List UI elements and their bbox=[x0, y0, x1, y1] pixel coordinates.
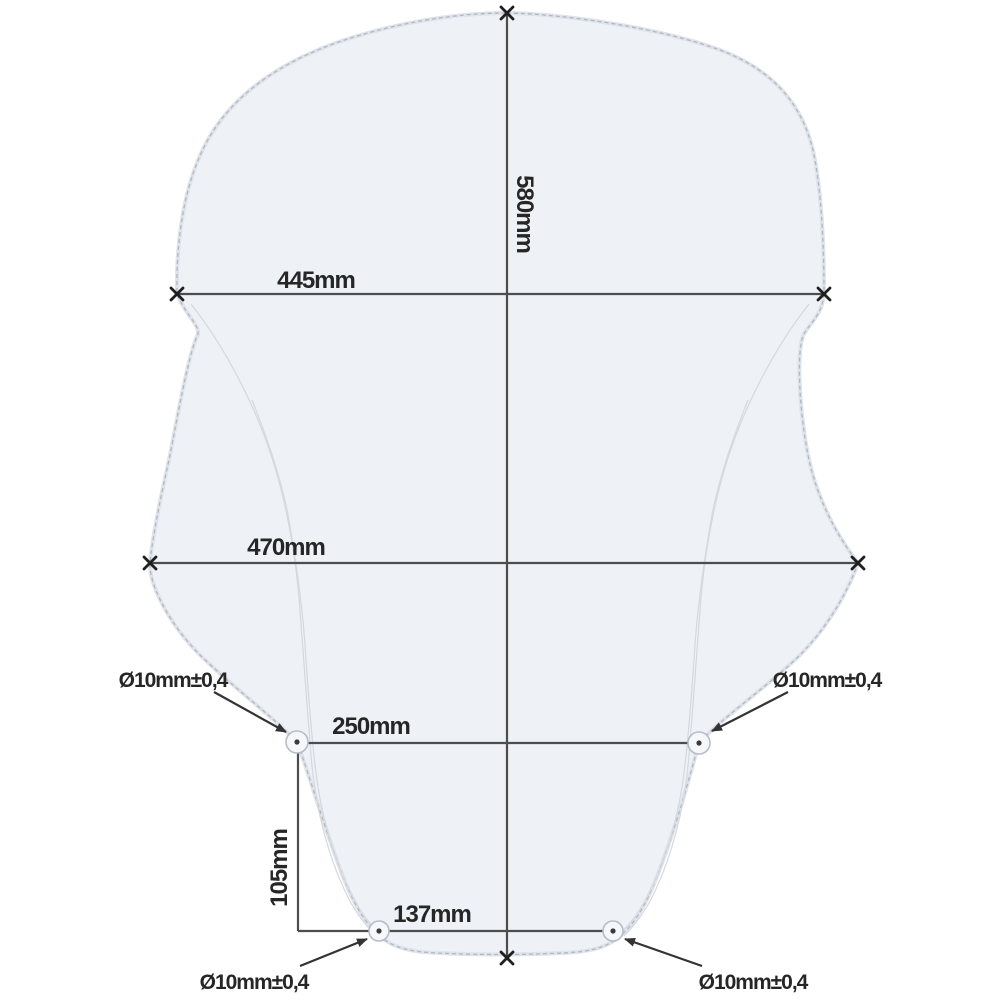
leader-bottom-right bbox=[625, 939, 702, 966]
hole-top-right bbox=[688, 732, 710, 754]
label-overall-height: 580mm bbox=[511, 175, 538, 253]
label-upper-hole-spacing: 250mm bbox=[332, 713, 410, 740]
label-hole-top-left: Ø10mm±0,4 bbox=[119, 669, 229, 692]
windscreen-technical-drawing: 445mm 580mm 470mm 250mm 105mm 137mm Ø10m… bbox=[0, 0, 1000, 1000]
windscreen-shape bbox=[150, 13, 858, 955]
drawing-canvas: 445mm 580mm 470mm 250mm 105mm 137mm Ø10m… bbox=[0, 0, 1000, 1000]
label-top-width: 445mm bbox=[277, 267, 355, 294]
label-hole-top-right: Ø10mm±0,4 bbox=[773, 669, 883, 692]
label-middle-width: 470mm bbox=[247, 534, 325, 561]
label-hole-bottom-right: Ø10mm±0,4 bbox=[699, 971, 809, 994]
label-hole-bottom-left: Ø10mm±0,4 bbox=[200, 971, 310, 994]
label-lower-hole-spacing: 137mm bbox=[393, 901, 471, 928]
hole-top-left bbox=[286, 731, 308, 753]
windscreen-body bbox=[150, 13, 858, 955]
hole-bottom-left bbox=[369, 921, 389, 941]
hole-bottom-right bbox=[603, 921, 623, 941]
leader-bottom-left bbox=[300, 939, 367, 966]
label-vertical-hole-offset: 105mm bbox=[266, 829, 293, 907]
